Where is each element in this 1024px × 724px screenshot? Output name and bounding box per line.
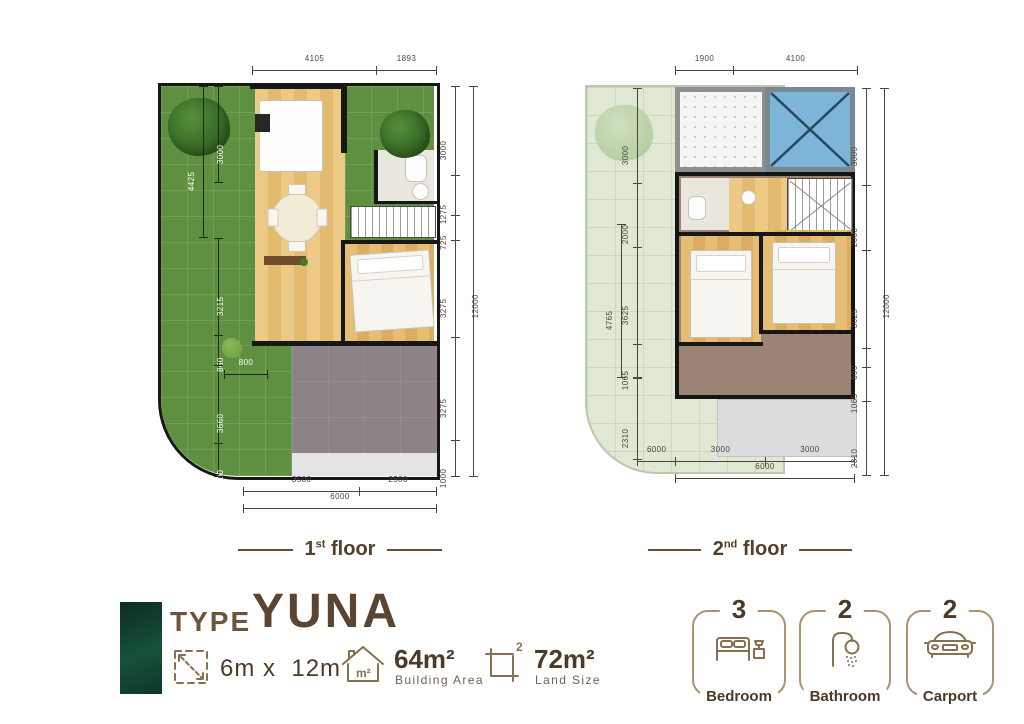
floor1-label: 1st floor (305, 538, 376, 561)
floor2-title: 2nd floor (648, 538, 852, 561)
blanket-fold (773, 269, 835, 270)
dim-lawn-top: 3000 (218, 86, 223, 183)
floorplan-brochure: 4105 1893 3000 1275 725 3275 3275 1000 1… (0, 0, 1024, 724)
dim-lawn-outer: 4425 (203, 86, 208, 238)
carport-label: Carport (917, 688, 983, 705)
dim-bottom-total: 6000 (675, 478, 855, 483)
bathroom2-floor (681, 178, 729, 230)
building-area-value: 64m² (394, 644, 455, 675)
divider (387, 549, 442, 551)
dim-top: 1900 4100 (675, 70, 858, 75)
building-area-icon-text: m² (356, 666, 371, 680)
bedroom2-floor (681, 236, 761, 342)
bathroom-count: 2 (826, 594, 864, 625)
carport-count: 2 (931, 594, 969, 625)
floor1-title: 1st floor (238, 538, 442, 561)
wall (759, 232, 763, 334)
skylight-void (765, 87, 855, 172)
tree-icon-faded (595, 105, 653, 161)
dim-left-bottom: 2310 (637, 378, 642, 460)
dim-top: 4105 1893 (252, 70, 437, 75)
void-cross-icon (770, 92, 850, 167)
divider (648, 549, 701, 551)
dim-left-chain: 3000 2000 3625 1065 (637, 88, 642, 378)
stairs (787, 178, 853, 234)
pillow (778, 247, 830, 263)
accent-bar (120, 602, 162, 694)
dim-right-total: 12000 (473, 86, 478, 477)
upper-floor-body (675, 172, 855, 399)
wall (679, 342, 763, 346)
plot-dimension-value: 6m x 12m (220, 655, 341, 683)
floor1-plan: 4105 1893 3000 1275 725 3275 3275 1000 1… (0, 0, 512, 530)
bedroom-badge: 3 Bedroom (692, 610, 786, 696)
land-size-label: Land Size (535, 673, 601, 687)
plot-dimension-icon (172, 648, 210, 686)
wall (763, 330, 851, 334)
shower-icon (823, 626, 867, 668)
carport-badge: 2 Carport (906, 610, 994, 696)
bathroom-label: Bathroom (804, 688, 887, 705)
land-size-value: 72m² (534, 644, 595, 675)
type-label: TYPE (170, 606, 251, 638)
dim-right-total: 12000 (884, 88, 889, 476)
wall (679, 232, 851, 236)
divider (799, 549, 852, 551)
bed-icon (710, 626, 768, 666)
type-name: YUNA (252, 584, 400, 639)
toilet (688, 196, 706, 220)
bedroom-label: Bedroom (700, 688, 778, 705)
sink (741, 190, 756, 205)
dim-bottom-total: 6000 (243, 508, 437, 513)
dim-bottom-chain: 6000 3000 3000 (637, 461, 855, 466)
dim-right-chain: 3000 1275 725 3275 3275 1000 (455, 86, 460, 477)
lower-roof (717, 399, 857, 457)
dim-lawn-chain: 3215 860 3660 1000 (218, 238, 223, 477)
divider (238, 549, 293, 551)
bathroom-badge: 2 Bathroom (799, 610, 891, 696)
stairs-direction-icon (788, 179, 852, 233)
bedroom-count: 3 (720, 594, 758, 625)
dim-right-chain: 3000 2000 3025 600 1065 2310 (866, 88, 871, 476)
car-icon (922, 626, 978, 664)
bed (772, 242, 836, 324)
roof-terrace (675, 87, 767, 172)
blanket-fold (691, 279, 751, 280)
bed (690, 250, 752, 338)
dim-left-outer: 4765 (621, 224, 626, 378)
bedroom3-floor (763, 230, 851, 330)
site-outline-faded (585, 85, 785, 474)
land-size-icon-sup: 2 (516, 640, 523, 654)
dim-gate: 800 (224, 374, 268, 379)
floor2-label: 2nd floor (713, 538, 788, 561)
pillow (696, 255, 746, 272)
building-area-label: Building Area (395, 673, 484, 687)
hall-floor (729, 178, 787, 234)
